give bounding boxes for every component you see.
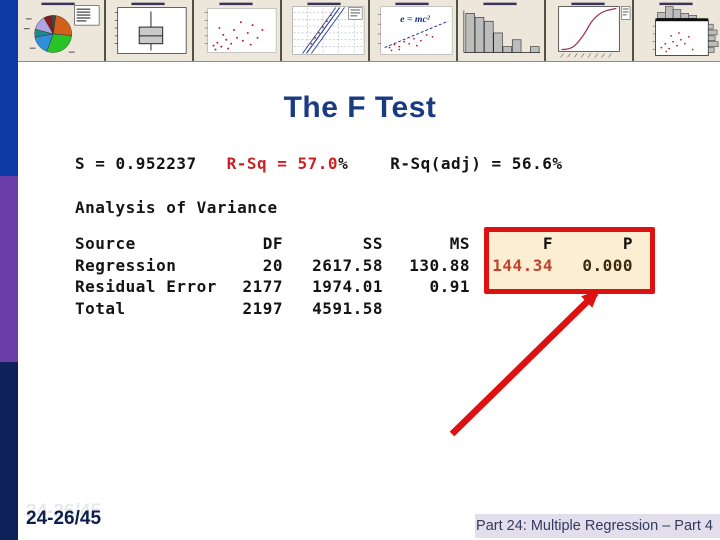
- table-row-regression: Regression 20 2617.58 130.88 144.34 0.00…: [75, 255, 633, 277]
- cell-df: 2197: [223, 299, 283, 318]
- col-f: F: [470, 234, 553, 253]
- r-squared-percent-sign: %: [338, 154, 348, 173]
- pie-chart-thumbnail-icon: [18, 0, 106, 61]
- col-ms: MS: [383, 234, 470, 253]
- s-curve-thumbnail-icon: [546, 0, 634, 61]
- left-bar-navy-segment: [0, 362, 18, 540]
- r-squared-adj-statistic: R-Sq(adj) = 56.6%: [390, 154, 562, 173]
- cell-source: Regression: [75, 256, 223, 275]
- histogram-thumbnail-icon: [458, 0, 546, 61]
- model-summary-line: S = 0.952237R-Sq = 57.0%R-Sq(adj) = 56.6…: [75, 154, 562, 173]
- cell-p-value: 0.000: [553, 256, 633, 275]
- cell-df: 2177: [223, 277, 283, 296]
- col-ss: SS: [283, 234, 383, 253]
- r-squared-statistic: R-Sq = 57.0: [227, 154, 338, 173]
- section-heading: Analysis of Variance: [75, 198, 278, 217]
- col-source: Source: [75, 234, 223, 253]
- footer-caption-strip: Part 24: Multiple Regression – Part 4: [475, 514, 720, 538]
- cell-source: Residual Error: [75, 277, 223, 296]
- col-p: P: [553, 234, 633, 253]
- boxplot-thumbnail-icon: [106, 0, 194, 61]
- equation-text: e = mc²: [400, 14, 431, 25]
- footer-caption: Part 24: Multiple Regression – Part 4: [476, 518, 713, 534]
- arrow-annotation-icon: [430, 275, 630, 445]
- col-df: DF: [223, 234, 283, 253]
- cell-ss: 1974.01: [283, 277, 383, 296]
- slide-root: e = mc²: [0, 0, 720, 540]
- page-title: The F Test: [0, 91, 720, 125]
- slide-number: 24-26/45: [26, 508, 101, 530]
- cell-df: 20: [223, 256, 283, 275]
- left-edge-bar: [0, 0, 18, 540]
- regression-fit-lines-thumbnail-icon: [282, 0, 370, 61]
- cell-ss: 4591.58: [283, 299, 383, 318]
- marginal-plot-thumbnail-icon: [634, 0, 720, 61]
- cell-ss: 2617.58: [283, 256, 383, 275]
- left-bar-purple-segment: [0, 176, 18, 362]
- equation-scatter-thumbnail-icon: e = mc²: [370, 0, 458, 61]
- cell-f-value: 144.34: [470, 256, 553, 275]
- chart-thumbnail-strip: e = mc²: [18, 0, 720, 62]
- cell-ms: 130.88: [383, 256, 470, 275]
- cell-source: Total: [75, 299, 223, 318]
- s-statistic: S = 0.952237: [75, 154, 197, 173]
- scatter-plot-thumbnail-icon: [194, 0, 282, 61]
- left-bar-blue-segment: [0, 0, 18, 176]
- anova-header-row: Source DF SS MS F P: [75, 233, 633, 255]
